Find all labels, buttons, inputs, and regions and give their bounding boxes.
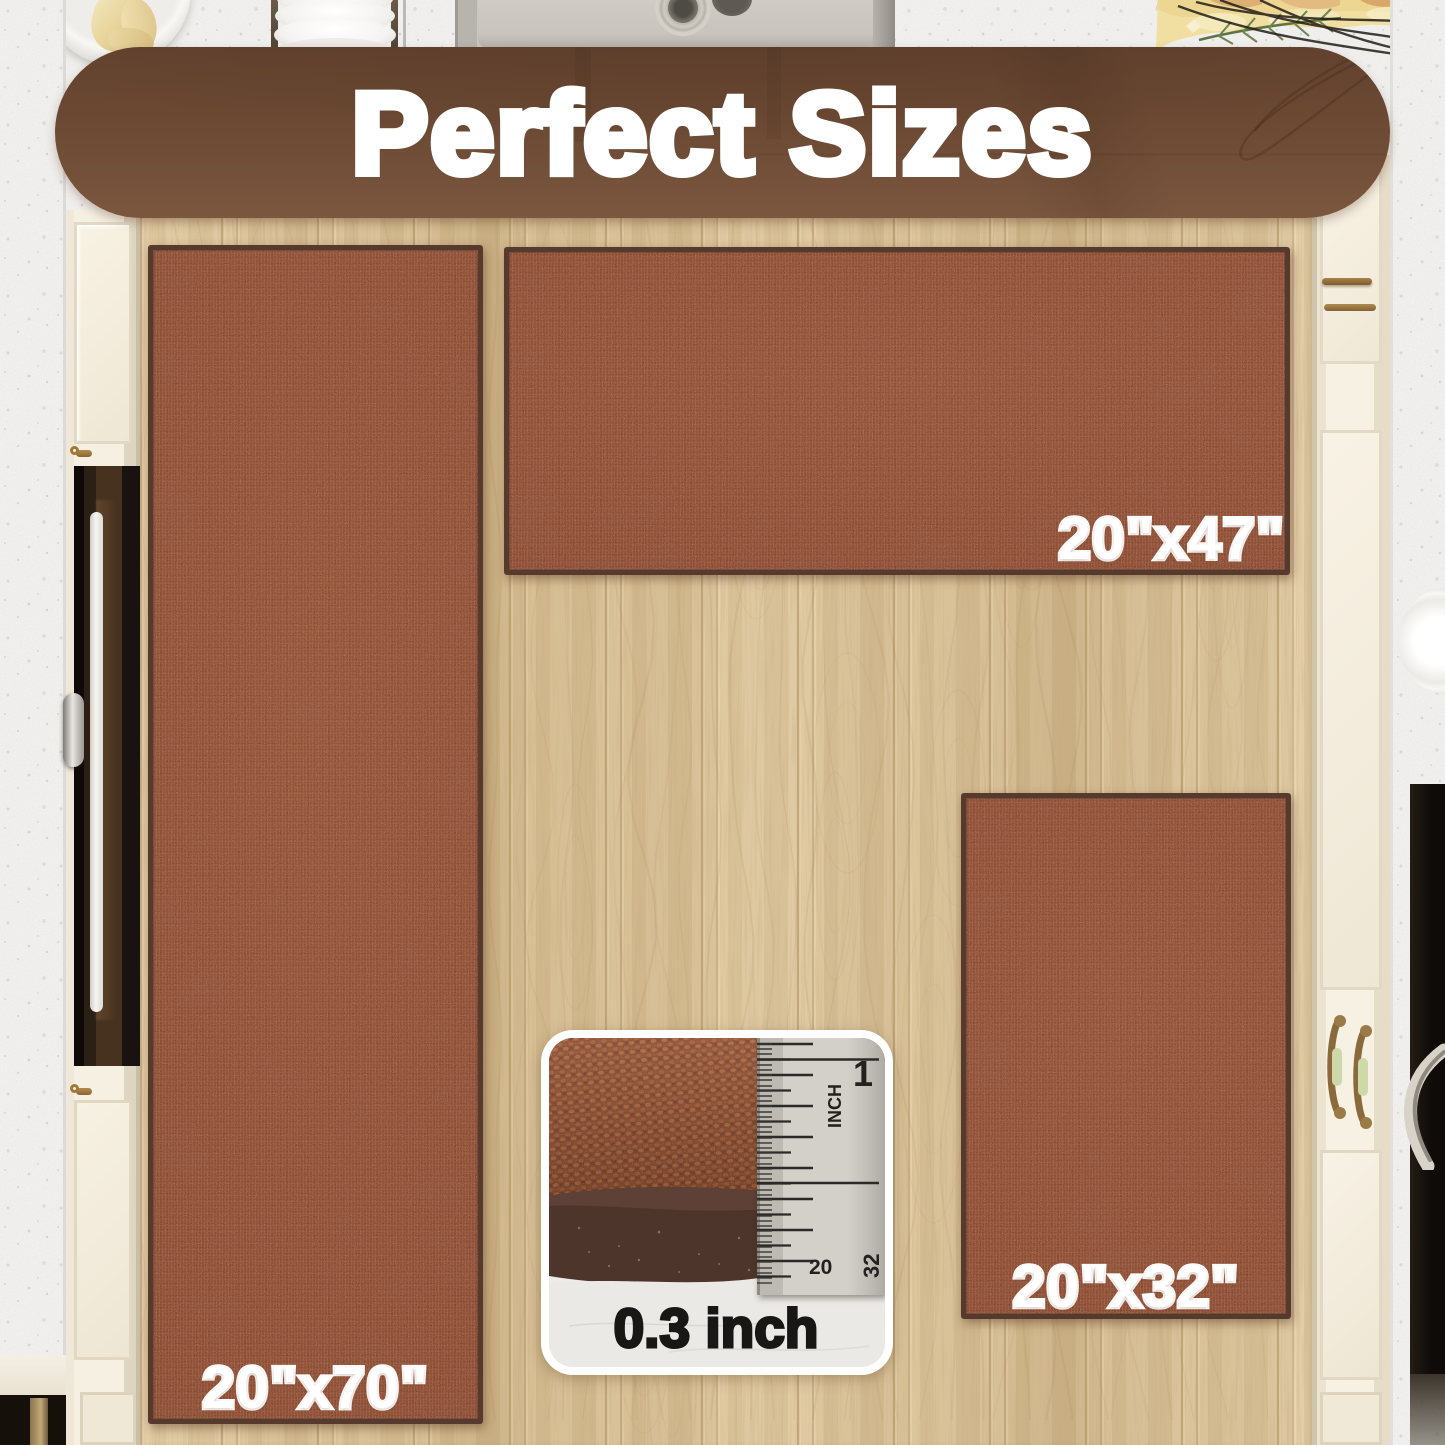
svg-text:1: 1 — [853, 1053, 873, 1094]
svg-text:INCH: INCH — [825, 1084, 845, 1128]
svg-text:32: 32 — [859, 1254, 884, 1278]
svg-text:20: 20 — [809, 1256, 832, 1279]
